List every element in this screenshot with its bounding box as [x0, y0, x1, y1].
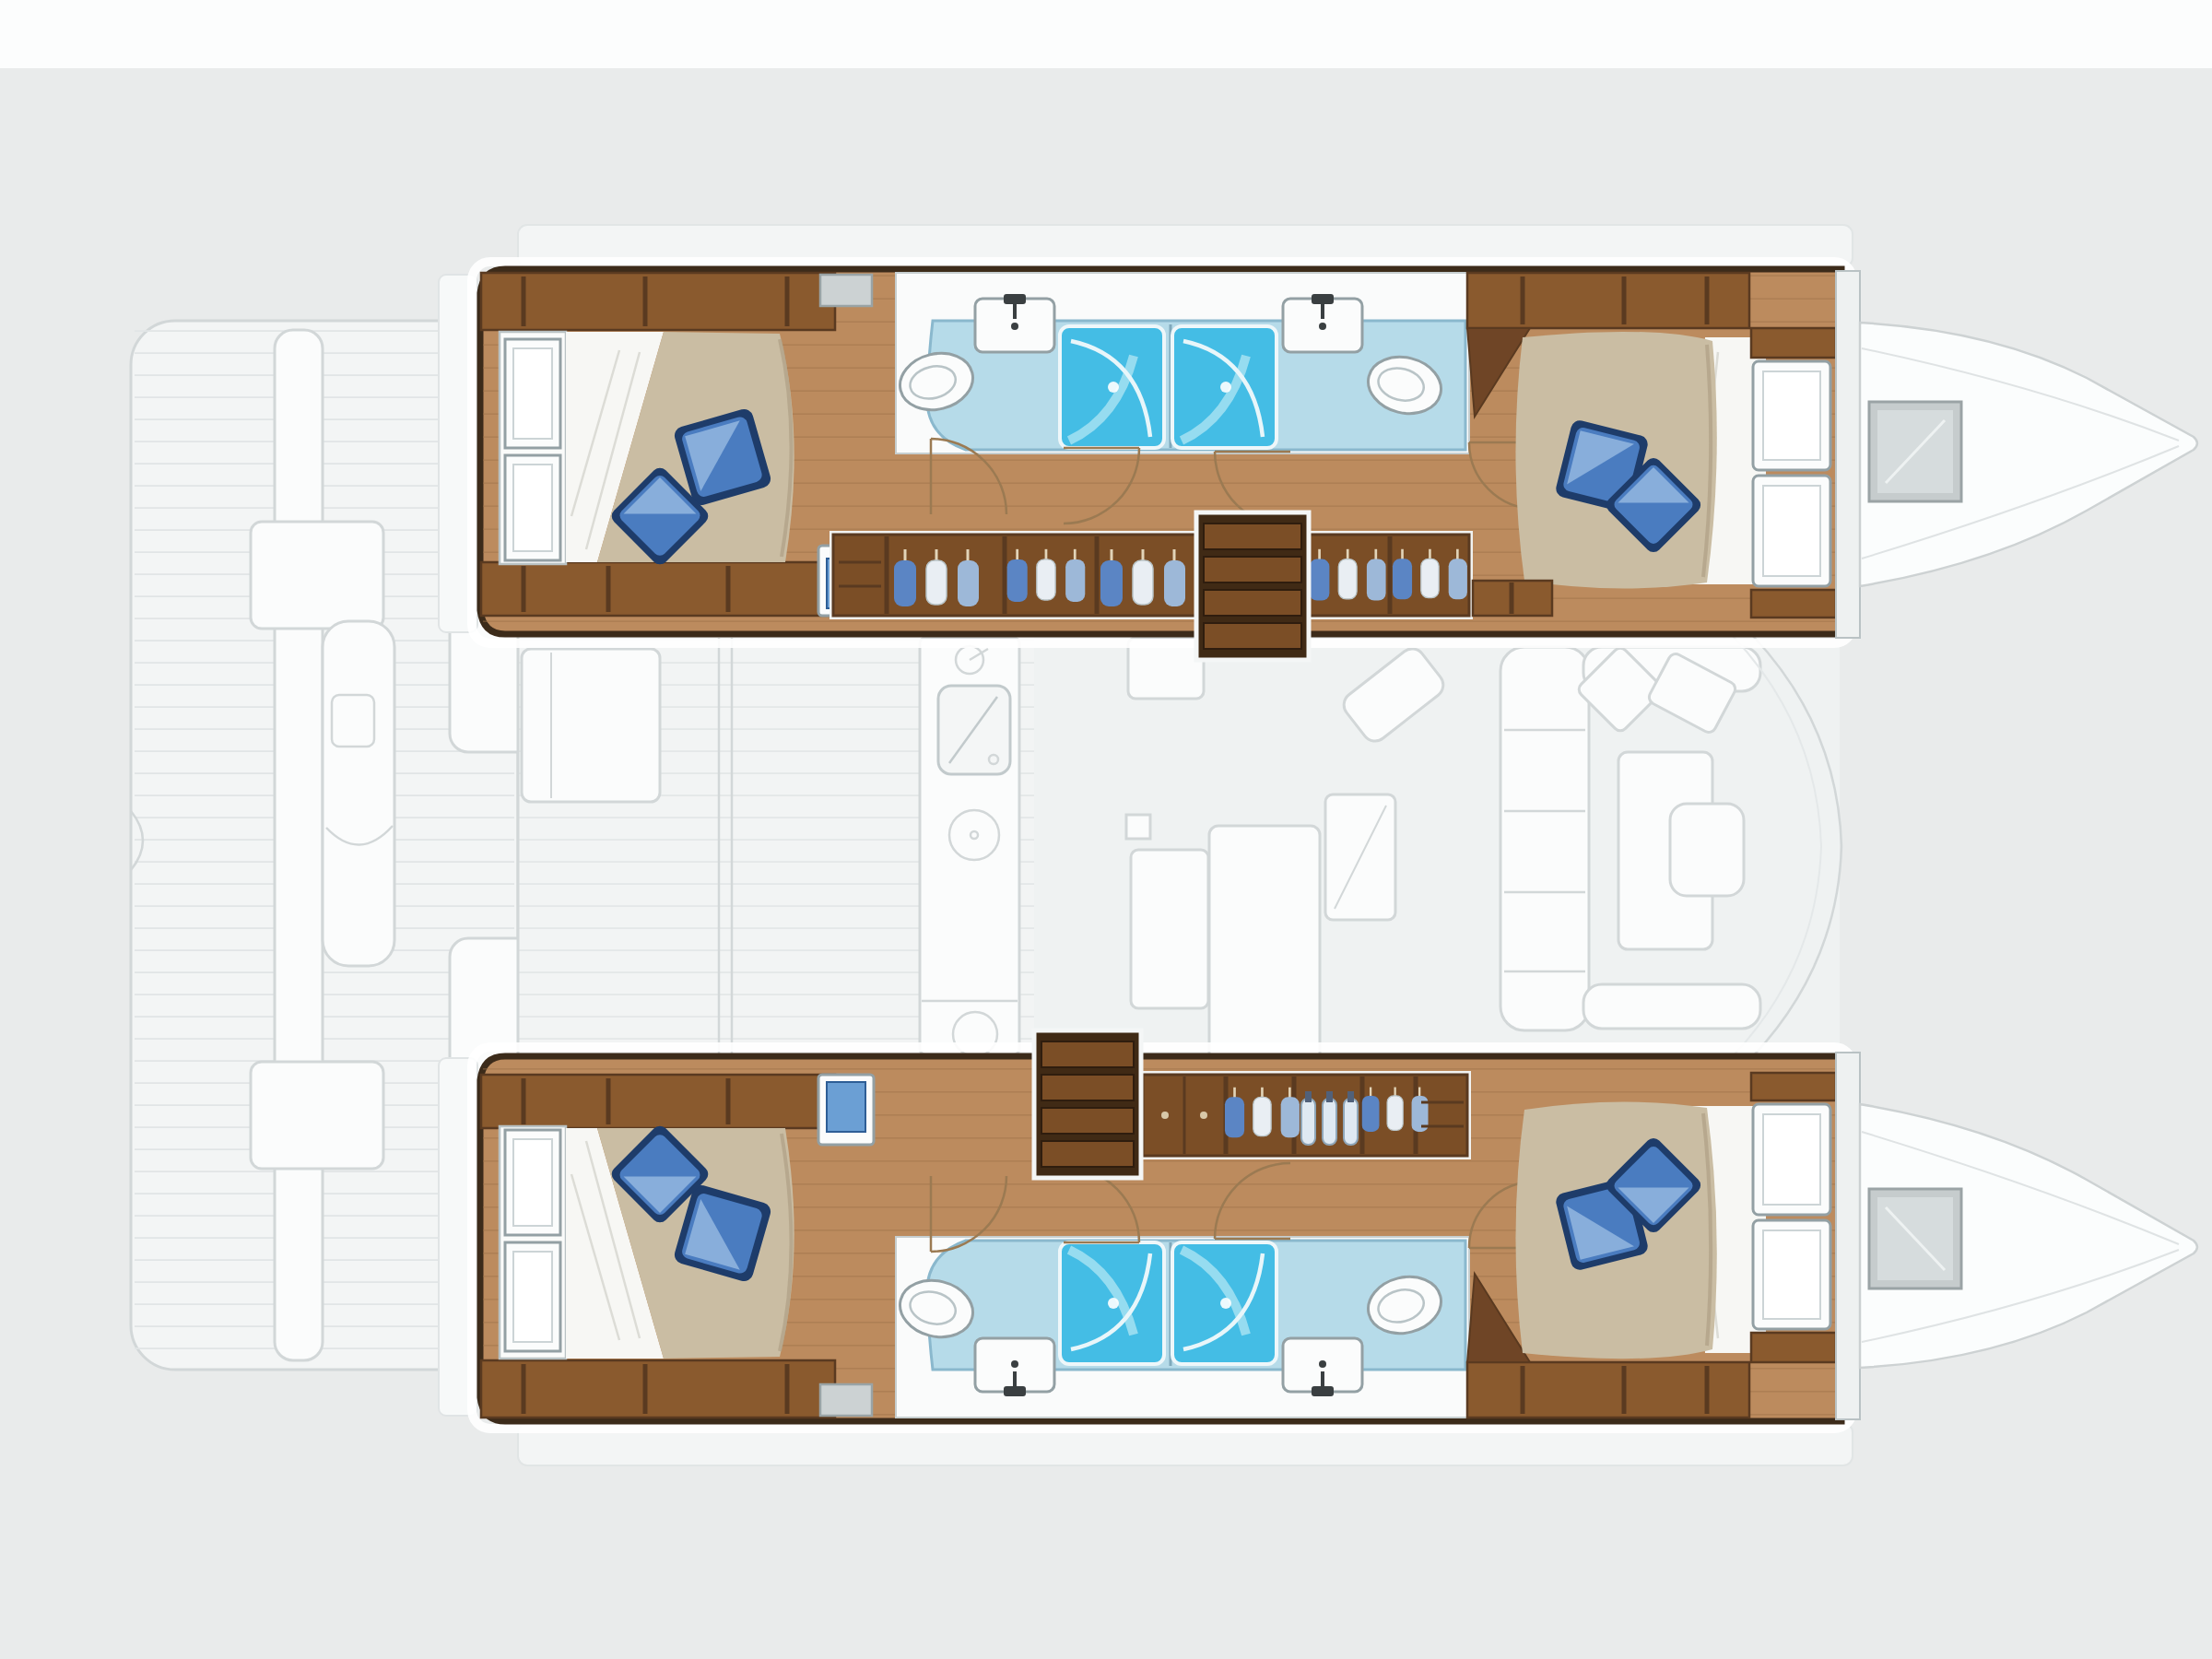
- transom-box: [251, 1062, 383, 1169]
- helm-pod: [323, 621, 394, 966]
- transom-bench: [275, 330, 323, 1360]
- salon-ghost: [518, 634, 1841, 1064]
- top-white-strip: [0, 0, 2212, 68]
- seat-pad: [1670, 804, 1744, 896]
- starboard-companionway-stairs: [1034, 1030, 1141, 1178]
- starboard-lockers: [1141, 1073, 1469, 1158]
- screenshot: Catamaran 4-cabin interior floor plan — …: [0, 0, 2212, 1659]
- dining-table: [1209, 826, 1320, 1064]
- port-companionway-stairs: [1196, 512, 1309, 660]
- catamaran-floor-plan: Catamaran 4-cabin interior floor plan — …: [0, 0, 2212, 1659]
- u-settee: [1500, 647, 1589, 1030]
- transom-box: [251, 522, 383, 629]
- port-settee: [522, 649, 660, 802]
- port-wardrobes: [831, 533, 1552, 618]
- mast-step: [1126, 815, 1150, 839]
- dining-table-leaf: [1131, 850, 1208, 1008]
